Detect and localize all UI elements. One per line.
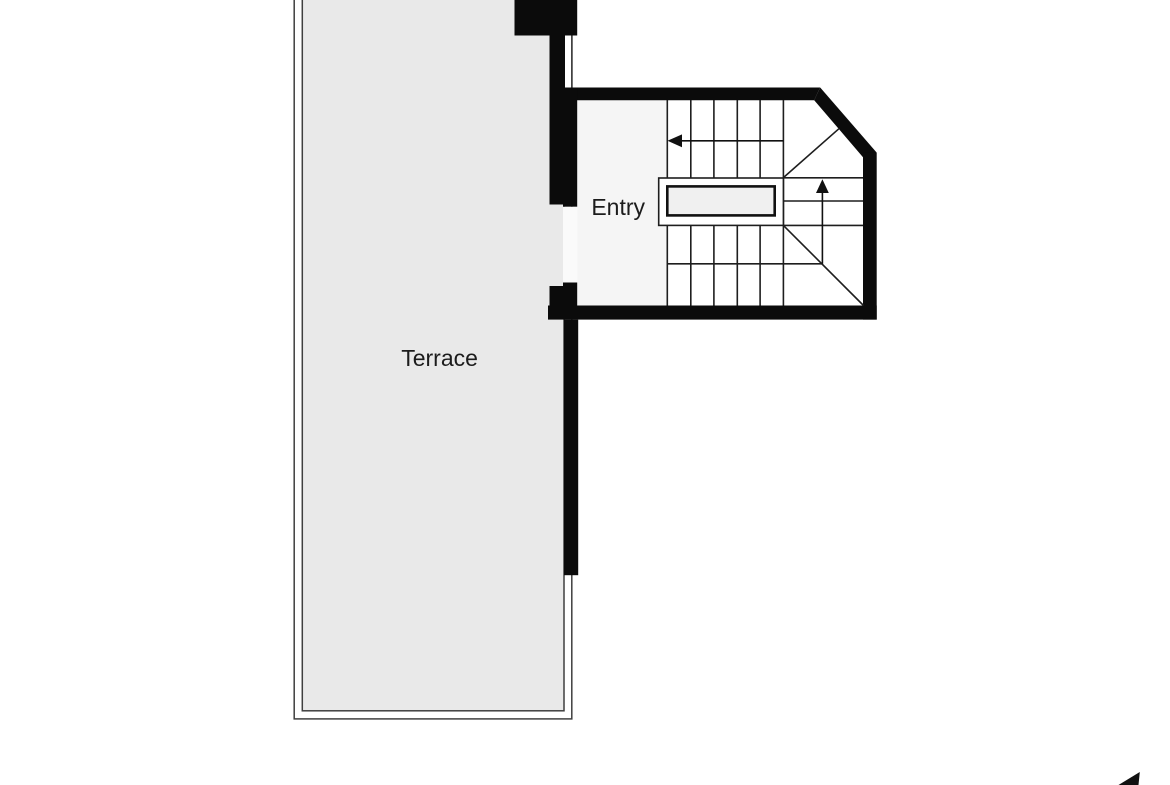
svg-text:Terrace: Terrace [401,345,478,371]
svg-text:Entry: Entry [591,194,645,220]
